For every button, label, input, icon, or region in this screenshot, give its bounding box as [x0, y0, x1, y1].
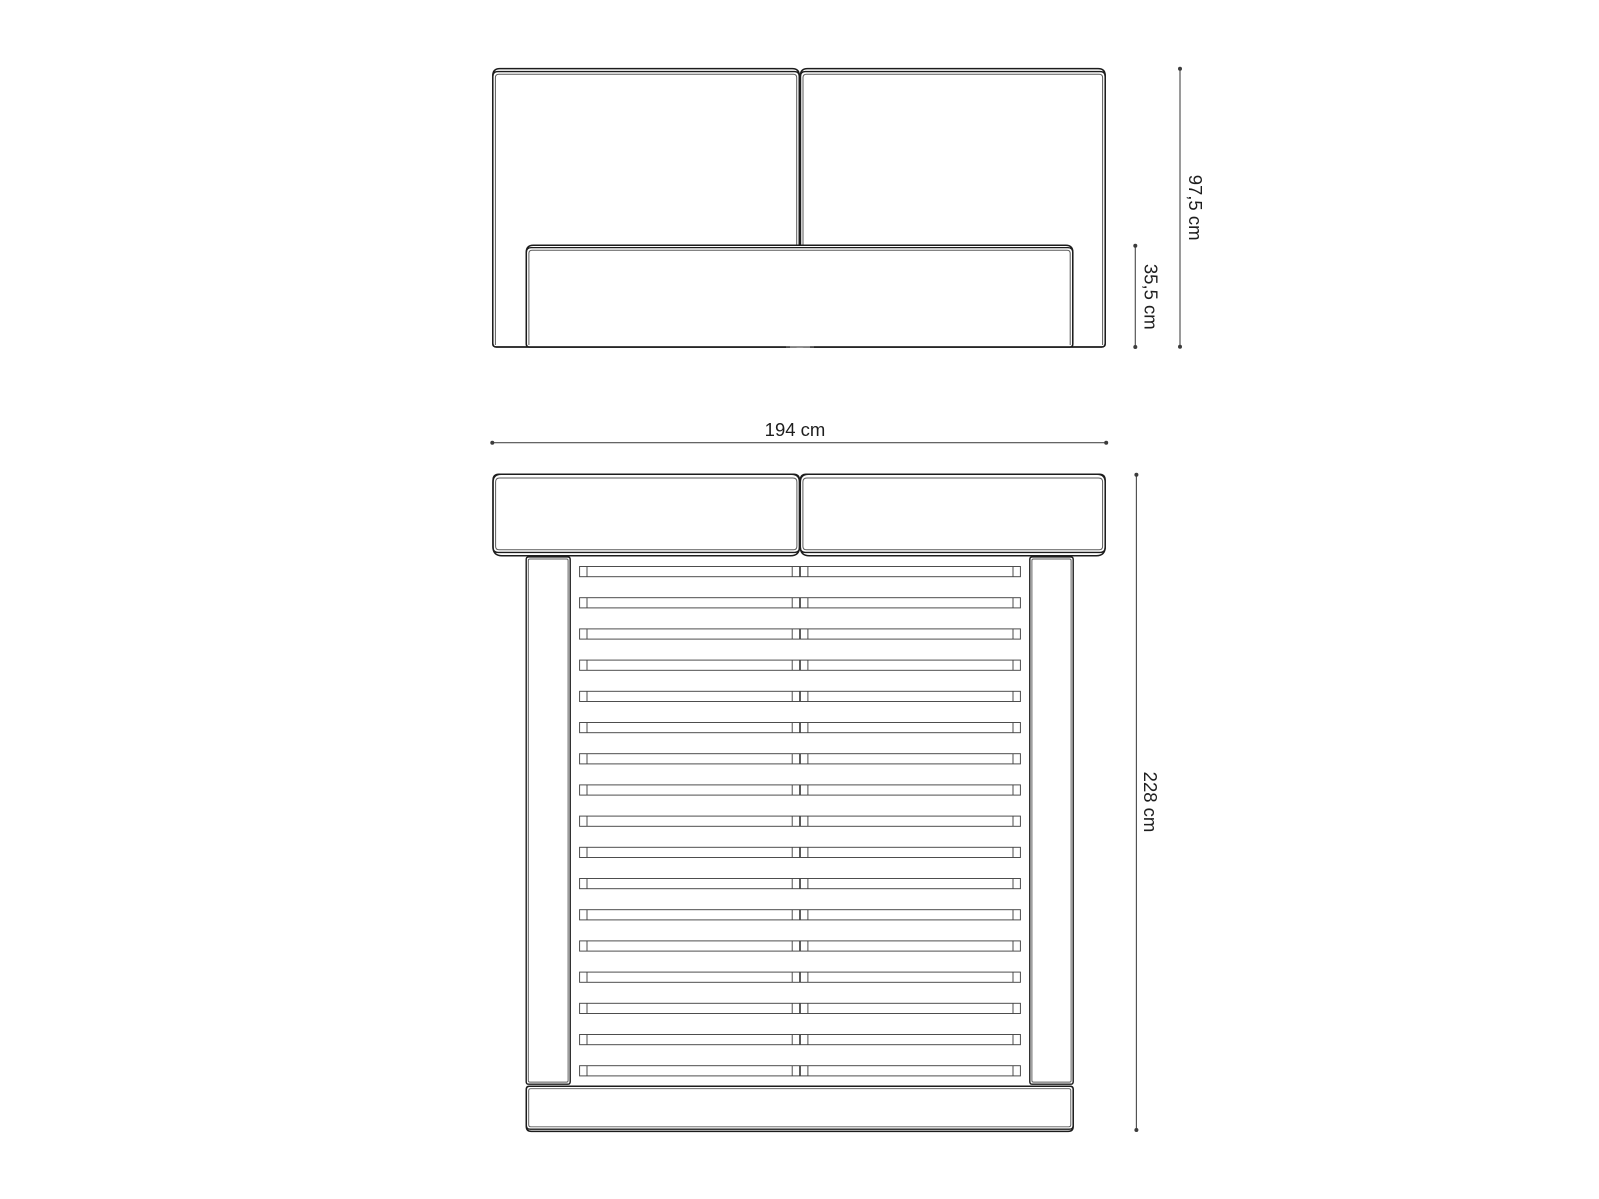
svg-text:97,5 cm: 97,5 cm	[1185, 175, 1206, 241]
svg-text:194 cm: 194 cm	[765, 419, 826, 440]
svg-text:35,5 cm: 35,5 cm	[1141, 264, 1162, 330]
svg-text:228 cm: 228 cm	[1140, 772, 1161, 833]
